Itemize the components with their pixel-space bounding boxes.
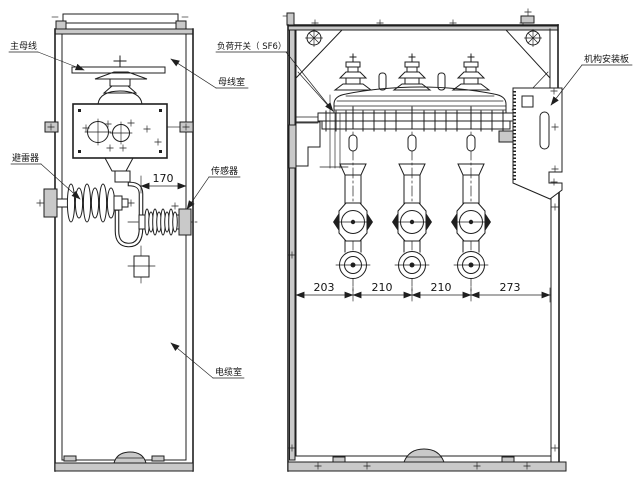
label-load-switch: 负荷开关（ SF6） <box>217 41 286 52</box>
annotation-cable-compartment: 电缆室 <box>171 343 244 378</box>
dim-210-b: 210 <box>431 281 452 294</box>
bottom-dimensions: 203 210 210 273 <box>296 281 550 302</box>
left-view-floor <box>55 452 193 471</box>
annotation-main-bus: 主母线 <box>9 40 84 70</box>
post-insulator <box>95 72 147 104</box>
lightning-arrester <box>37 184 134 222</box>
technical-drawing: 170 <box>0 0 640 481</box>
mechanism-box <box>73 104 167 158</box>
annotation-load-switch: 负荷开关（ SF6） <box>216 41 333 111</box>
label-mounting-plate: 机构安装板 <box>584 53 629 65</box>
mechanism-mounting-plate <box>513 88 562 199</box>
busbar <box>72 56 165 73</box>
right-view: 203 210 210 273 <box>283 9 566 471</box>
label-cable-compartment: 电缆室 <box>215 366 242 378</box>
cabinet-walls-left-view <box>55 29 193 471</box>
dim-273: 273 <box>500 281 521 294</box>
label-main-bus: 主母线 <box>10 40 37 52</box>
annotation-mounting-plate: 机构安装板 <box>551 53 632 105</box>
roof-plate <box>52 14 193 34</box>
dimension-170: 170 <box>141 172 186 193</box>
top-rail <box>283 9 558 30</box>
label-busbar-compartment: 母线室 <box>218 76 245 88</box>
left-view: 170 <box>37 14 197 471</box>
annotation-sensor: 传感器 <box>187 165 240 209</box>
right-wall-lower <box>551 190 559 462</box>
annotation-busbar-compartment: 母线室 <box>171 59 248 88</box>
bellows-sensor <box>128 203 197 235</box>
wall-brackets <box>45 122 193 132</box>
dim-210-a: 210 <box>372 281 393 294</box>
dim-203: 203 <box>314 281 335 294</box>
right-view-floor <box>288 449 566 471</box>
label-sensor: 传感器 <box>211 165 238 177</box>
dim-170: 170 <box>153 172 174 185</box>
label-arrester: 避雷器 <box>12 152 39 164</box>
drawing-canvas: 170 <box>0 0 640 481</box>
